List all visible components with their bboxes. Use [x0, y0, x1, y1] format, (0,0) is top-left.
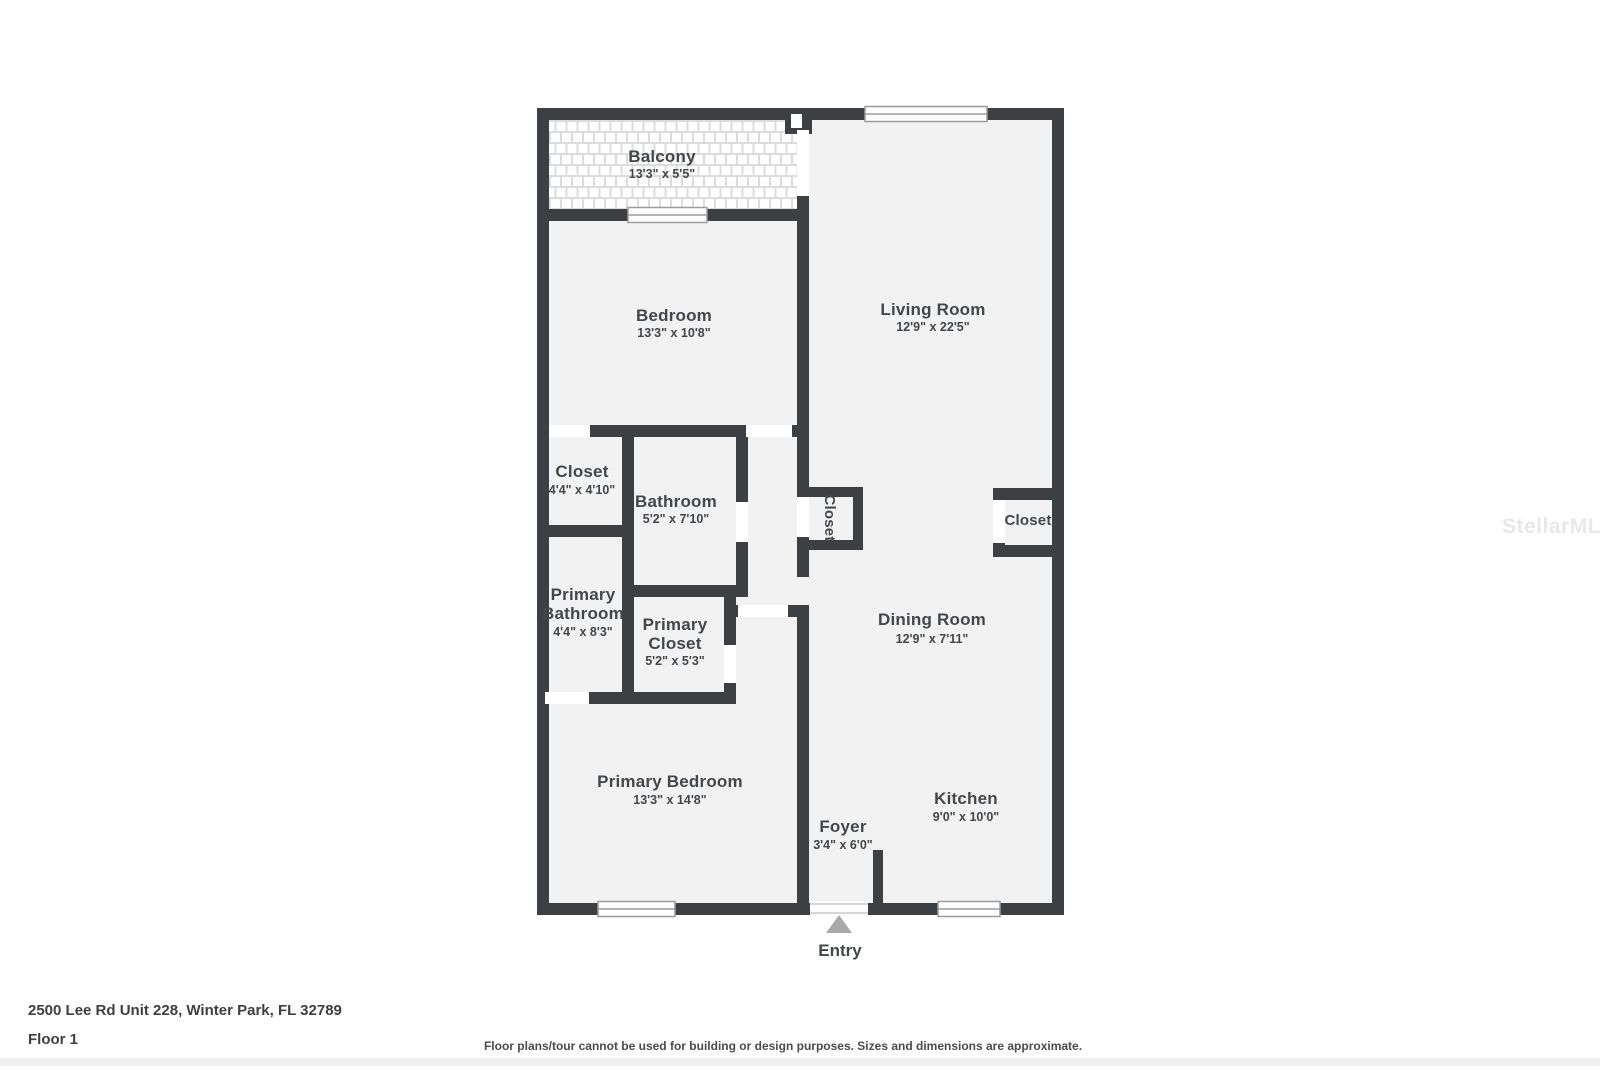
room-dims-hall-closet: 4'4" x 4'10"	[549, 483, 616, 497]
room-dims-foyer: 3'4" x 6'0"	[813, 838, 873, 852]
room-label-middle-closet: Closet	[821, 494, 838, 541]
room-label-dining-room: Dining Room	[878, 610, 986, 629]
room-label-primary-bedroom: Primary Bedroom	[597, 772, 743, 791]
room-dims-balcony: 13'3" x 5'5"	[629, 167, 696, 181]
room-dims-bedroom: 13'3" x 10'8"	[637, 326, 710, 340]
footer-disclaimer: Floor plans/tour cannot be used for buil…	[400, 1039, 1166, 1053]
room-label-foyer: Foyer	[819, 817, 866, 836]
room-dims-primary-closet: 5'2" x 5'3"	[645, 654, 705, 668]
room-label-hall-closet: Closet	[555, 462, 608, 481]
room-label-primary-bathroom-1: Primary	[551, 585, 616, 604]
floor-plan-drawing: Balcony 13'3" x 5'5" Bedroom 13'3" x 10'…	[0, 0, 1600, 1066]
room-dims-kitchen: 9'0" x 10'0"	[933, 810, 1000, 824]
footer-floor-label: Floor 1	[28, 1031, 78, 1048]
bottom-edge-strip	[0, 1058, 1600, 1066]
primary-bedroom-window	[598, 902, 675, 917]
entry-arrow-icon	[826, 915, 852, 933]
living-room-window	[865, 107, 987, 122]
floor-plan-page: Balcony 13'3" x 5'5" Bedroom 13'3" x 10'…	[0, 0, 1600, 1066]
room-dims-primary-bathroom: 4'4" x 8'3"	[553, 625, 613, 639]
room-dims-bathroom: 5'2" x 7'10"	[643, 512, 710, 526]
room-label-balcony: Balcony	[628, 147, 696, 166]
entry-label: Entry	[818, 941, 862, 960]
footer-address: 2500 Lee Rd Unit 228, Winter Park, FL 32…	[28, 1002, 342, 1019]
room-label-right-closet: Closet	[1004, 512, 1051, 529]
room-label-bedroom: Bedroom	[636, 306, 712, 325]
room-label-primary-closet-2: Closet	[648, 634, 701, 653]
kitchen-window	[938, 902, 1000, 917]
room-label-bathroom: Bathroom	[635, 492, 717, 511]
balcony-slider-window	[628, 208, 707, 223]
stellar-mls-watermark: StellarMLS	[1502, 515, 1600, 539]
room-label-kitchen: Kitchen	[934, 789, 998, 808]
room-dims-primary-bedroom: 13'3" x 14'8"	[633, 793, 706, 807]
wall-notch	[791, 114, 802, 128]
room-label-primary-bathroom-2: Bathroom	[542, 604, 624, 623]
room-label-primary-closet-1: Primary	[643, 615, 708, 634]
room-label-living-room: Living Room	[880, 300, 985, 319]
room-dims-living-room: 12'9" x 22'5"	[896, 320, 969, 334]
room-dims-dining-room: 12'9" x 7'11"	[896, 632, 969, 646]
